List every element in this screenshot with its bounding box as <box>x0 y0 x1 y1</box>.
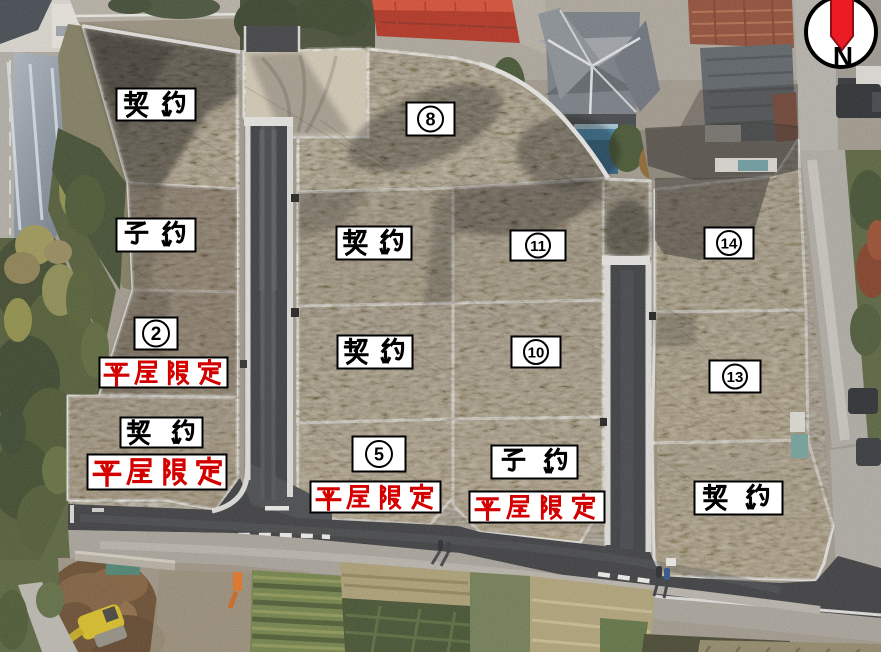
svg-text:8: 8 <box>425 110 435 130</box>
svg-text:2: 2 <box>151 324 162 345</box>
svg-text:10: 10 <box>528 345 545 362</box>
svg-text:5: 5 <box>374 445 384 465</box>
svg-text:11: 11 <box>530 238 546 255</box>
svg-text:13: 13 <box>727 369 744 386</box>
svg-text:14: 14 <box>721 236 738 253</box>
svg-text:N: N <box>833 41 853 72</box>
